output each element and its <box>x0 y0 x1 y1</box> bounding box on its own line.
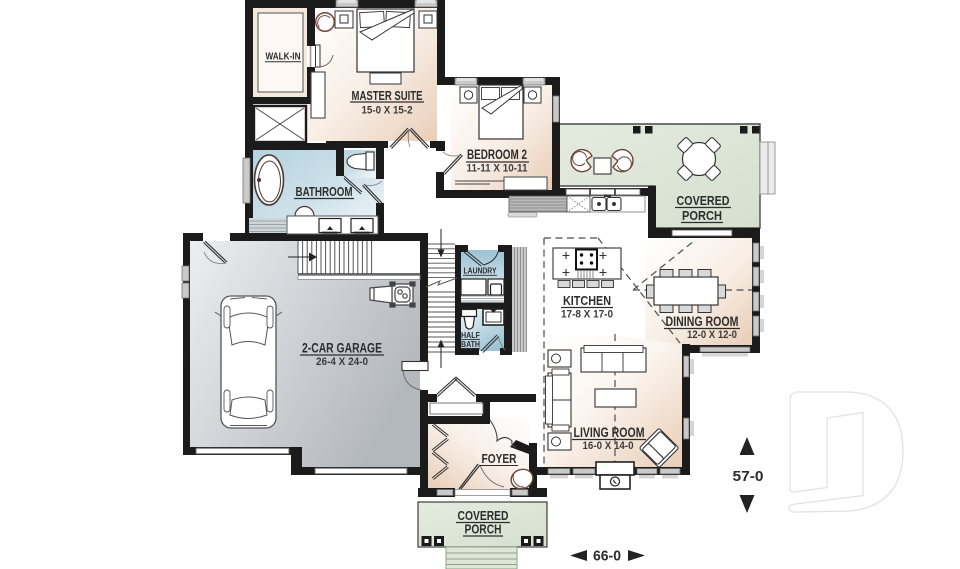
svg-text:PORCH: PORCH <box>465 523 502 537</box>
svg-text:FOYER: FOYER <box>482 452 517 466</box>
svg-text:66-0: 66-0 <box>593 549 621 565</box>
svg-text:PORCH: PORCH <box>682 208 722 223</box>
svg-text:57-0: 57-0 <box>733 469 764 485</box>
svg-text:12-0 X 12-0: 12-0 X 12-0 <box>687 329 737 341</box>
svg-text:KITCHEN: KITCHEN <box>563 293 611 308</box>
svg-text:WALK-IN: WALK-IN <box>266 52 301 63</box>
svg-text:BATHROOM: BATHROOM <box>296 184 353 199</box>
svg-text:15-0 X 15-2: 15-0 X 15-2 <box>362 105 413 117</box>
svg-text:2-CAR GARAGE: 2-CAR GARAGE <box>302 341 382 356</box>
svg-text:11-11 X 10-11: 11-11 X 10-11 <box>467 163 528 175</box>
svg-text:LIVING ROOM: LIVING ROOM <box>574 425 645 440</box>
svg-text:BATH: BATH <box>461 339 480 349</box>
svg-text:17-8 X 17-0: 17-8 X 17-0 <box>561 309 613 321</box>
svg-text:16-0 X 14-0: 16-0 X 14-0 <box>583 440 634 452</box>
svg-text:MASTER SUITE: MASTER SUITE <box>352 88 423 103</box>
svg-text:BEDROOM 2: BEDROOM 2 <box>467 147 527 162</box>
svg-text:COVERED: COVERED <box>458 509 509 523</box>
svg-text:DINING ROOM: DINING ROOM <box>666 314 739 329</box>
svg-text:COVERED: COVERED <box>677 193 730 208</box>
svg-text:LAUNDRY: LAUNDRY <box>464 266 497 276</box>
svg-text:26-4 X 24-0: 26-4 X 24-0 <box>316 356 368 368</box>
